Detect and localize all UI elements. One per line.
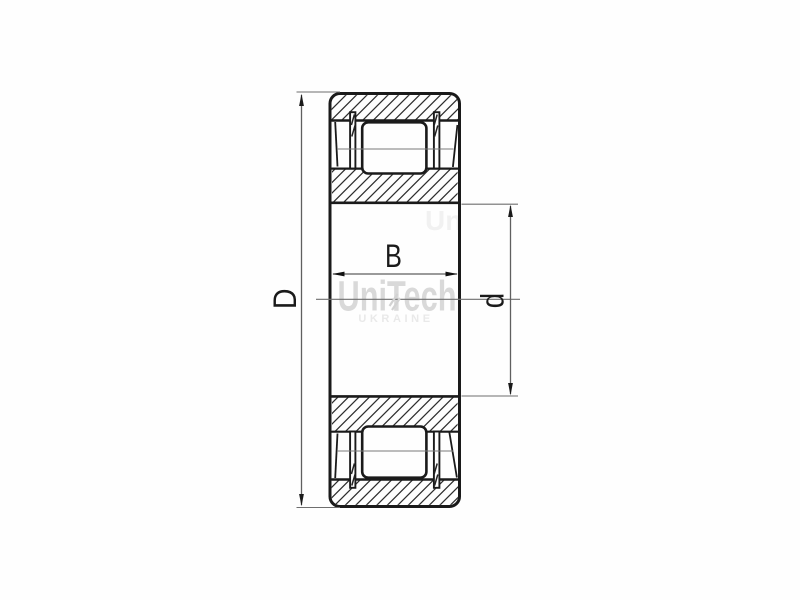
svg-text:d: d xyxy=(475,293,511,308)
svg-text:D: D xyxy=(268,288,304,309)
svg-text:B: B xyxy=(385,239,402,275)
